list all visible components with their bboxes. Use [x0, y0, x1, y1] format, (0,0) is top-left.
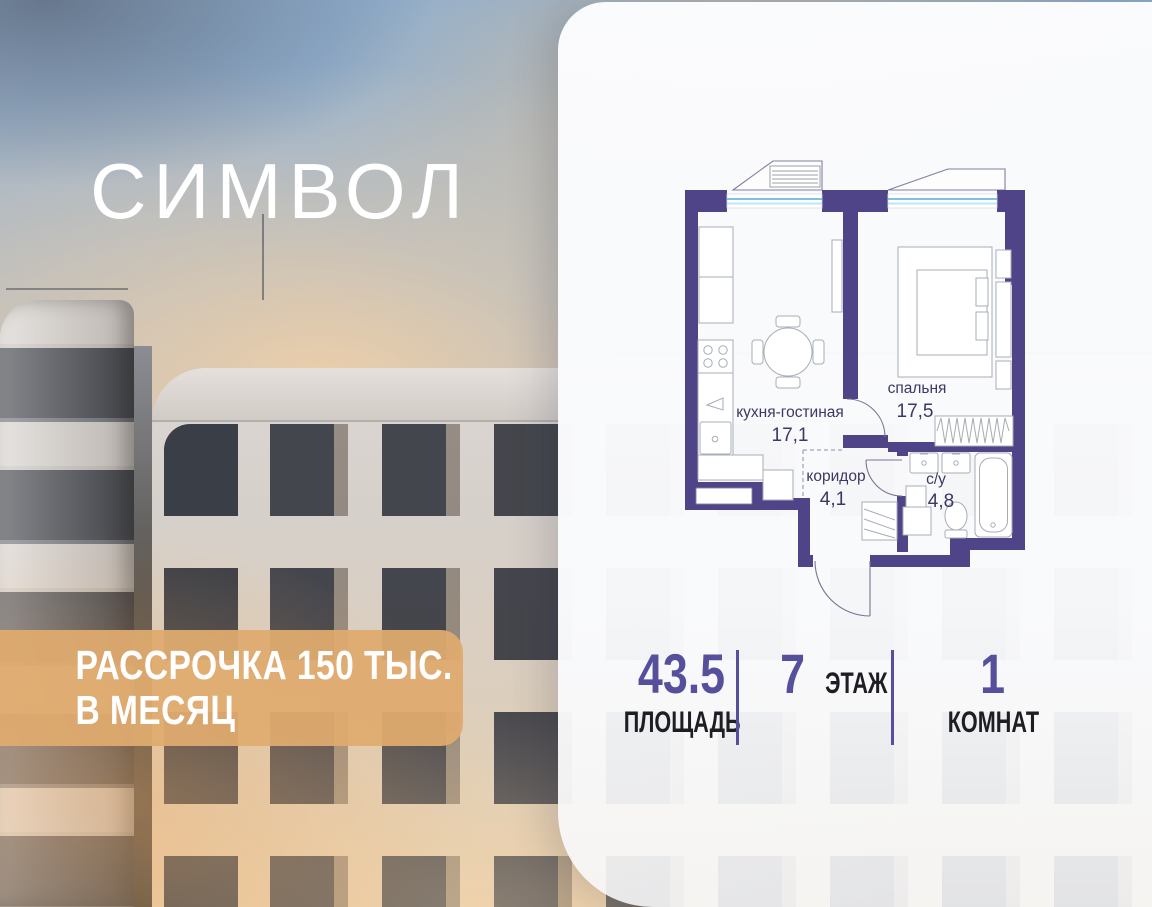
stat-area-label: ПЛОЩАДЬ [624, 706, 741, 739]
sink-right [942, 453, 970, 473]
room-area-bathroom: 4,8 [928, 491, 954, 512]
bathroom-door-arc [866, 460, 902, 496]
tall-cabinet [832, 240, 842, 312]
stove [698, 340, 733, 373]
floorplan: кухня-гостиная 17,1 спальня 17,5 коридор… [670, 150, 1050, 630]
ac-unit-icon [770, 166, 820, 187]
sofa [699, 227, 733, 323]
installment-banner: РАССРОЧКА 150 ТЫС. В МЕСЯЦ [0, 630, 463, 746]
wardrobe [935, 416, 1013, 446]
room-label-corridor: коридор [806, 468, 865, 485]
kitchen-sink [700, 422, 731, 454]
room-label-kitchen: кухня-гостиная [736, 404, 844, 421]
stats-row: 43.5 ПЛОЩАДЬ 7 ЭТАЖ 1 КОМНАТ [558, 646, 1152, 756]
roof-railing-left [6, 288, 128, 290]
kitchen-furniture [698, 227, 842, 500]
building-pier [134, 346, 152, 907]
bed [898, 247, 992, 377]
bedroom-shelves [996, 250, 1011, 389]
stat-area-value: 43.5 [637, 646, 724, 702]
room-label-bedroom: спальня [888, 380, 947, 397]
installment-banner-text: РАССРОЧКА 150 ТЫС. В МЕСЯЦ [0, 643, 453, 733]
project-title: СИМВОЛ [70, 152, 490, 230]
room-area-bedroom: 17,5 [897, 401, 934, 422]
banner-line2: В МЕСЯЦ [75, 688, 452, 733]
apartment-card[interactable]: кухня-гостиная 17,1 спальня 17,5 коридор… [558, 2, 1152, 907]
bedroom-door-arc [847, 399, 885, 437]
shoe-cabinet [763, 470, 793, 500]
sink-left [910, 453, 938, 473]
stat-rooms-value: 1 [981, 646, 1006, 702]
stat-rooms: 1 КОМНАТ [913, 646, 1073, 739]
stats-divider-2 [891, 650, 894, 745]
room-area-kitchen: 17,1 [772, 425, 809, 446]
dining-table [752, 316, 824, 388]
hall-closet [862, 502, 897, 540]
stat-rooms-label: КОМНАТ [947, 706, 1038, 739]
room-label-bathroom: с/у [926, 471, 946, 488]
stats-divider-1 [736, 650, 739, 745]
room-area-corridor: 4,1 [820, 489, 846, 510]
listing-card-root: СИМВОЛ РАССРОЧКА 150 ТЫС. В МЕСЯЦ [0, 0, 1152, 907]
stat-floor-label: ЭТАЖ [825, 667, 887, 700]
bathtub [975, 453, 1012, 537]
building-left-tower [0, 300, 134, 907]
banner-line1: РАССРОЧКА 150 ТЫС. [75, 643, 452, 688]
stat-floor-value: 7 [780, 646, 805, 702]
stat-floor: 7 ЭТАЖ [758, 646, 918, 702]
entrance-door-arc [815, 561, 870, 616]
